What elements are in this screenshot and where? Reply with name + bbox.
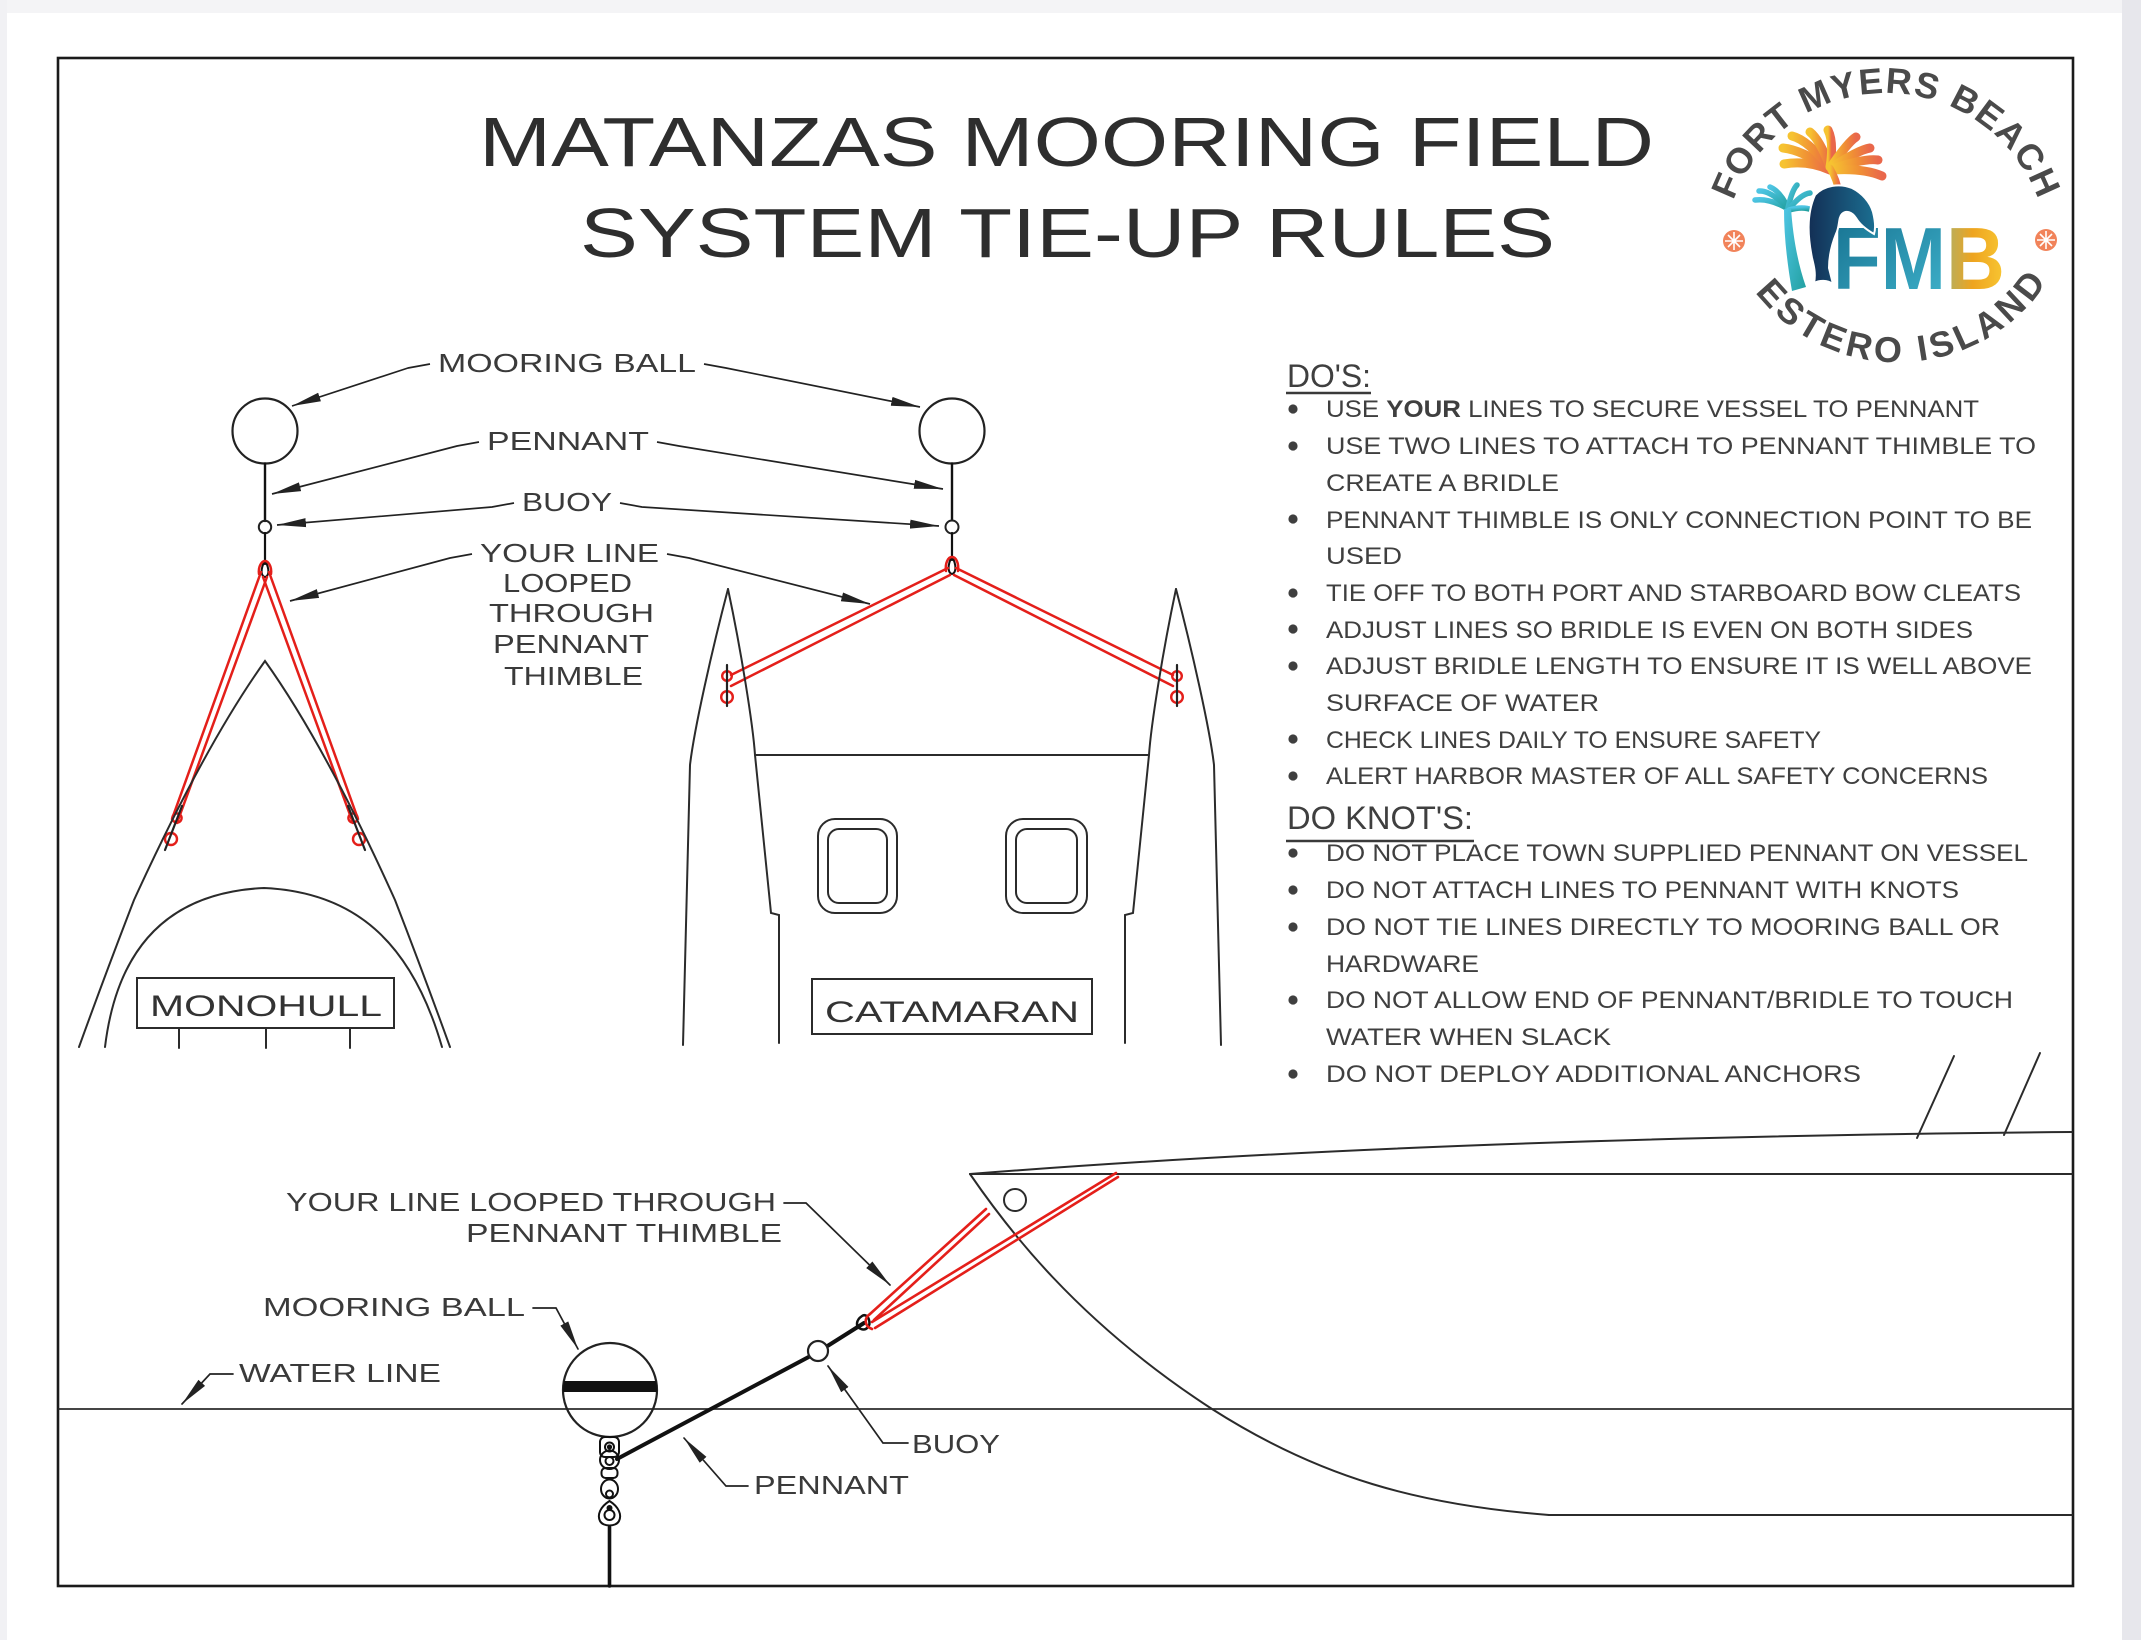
svg-text:DO NOT ATTACH LINES TO PENNANT: DO NOT ATTACH LINES TO PENNANT WITH KNOT…: [1326, 877, 1959, 904]
svg-text:DO'S:: DO'S:: [1287, 358, 1371, 394]
svg-text:HARDWARE: HARDWARE: [1326, 951, 1479, 978]
svg-text:WATER WHEN SLACK: WATER WHEN SLACK: [1326, 1024, 1611, 1051]
svg-text:BUOY: BUOY: [912, 1429, 1000, 1459]
svg-text:DO NOT PLACE TOWN SUPPLIED PEN: DO NOT PLACE TOWN SUPPLIED PENNANT ON VE…: [1326, 840, 2028, 867]
svg-text:DO KNOT'S:: DO KNOT'S:: [1287, 800, 1473, 836]
svg-text:FM: FM: [1833, 209, 1946, 308]
svg-text:PENNANT: PENNANT: [754, 1470, 909, 1500]
svg-text:YOUR LINE LOOPED THROUGH: YOUR LINE LOOPED THROUGH: [286, 1187, 776, 1217]
svg-text:CHECK LINES DAILY TO ENSURE SA: CHECK LINES DAILY TO ENSURE SAFETY: [1326, 727, 1821, 754]
svg-text:THROUGH: THROUGH: [489, 598, 654, 628]
svg-text:USE YOUR LINES TO SECURE VESSE: USE YOUR LINES TO SECURE VESSEL TO PENNA…: [1326, 396, 1979, 423]
svg-text:TIE OFF TO BOTH PORT AND STARB: TIE OFF TO BOTH PORT AND STARBOARD BOW C…: [1326, 580, 2021, 607]
svg-text:SYSTEM TIE-UP RULES: SYSTEM TIE-UP RULES: [580, 194, 1555, 272]
svg-text:DO NOT DEPLOY ADDITIONAL ANCHO: DO NOT DEPLOY ADDITIONAL ANCHORS: [1326, 1061, 1861, 1088]
svg-text:MONOHULL: MONOHULL: [150, 990, 382, 1023]
svg-text:ALERT HARBOR MASTER OF ALL SAF: ALERT HARBOR MASTER OF ALL SAFETY CONCER…: [1326, 763, 1988, 790]
svg-text:BUOY: BUOY: [522, 487, 612, 517]
svg-text:MOORING BALL: MOORING BALL: [263, 1292, 525, 1322]
svg-text:DO NOT ALLOW END OF PENNANT/BR: DO NOT ALLOW END OF PENNANT/BRIDLE TO TO…: [1326, 987, 2013, 1014]
svg-text:THIMBLE: THIMBLE: [504, 661, 643, 691]
svg-text:MATANZAS MOORING FIELD: MATANZAS MOORING FIELD: [479, 103, 1654, 181]
svg-text:PENNANT THIMBLE: PENNANT THIMBLE: [466, 1218, 782, 1248]
svg-text:PENNANT: PENNANT: [487, 426, 649, 456]
svg-text:USED: USED: [1326, 543, 1402, 570]
svg-text:YOUR LINE: YOUR LINE: [480, 538, 659, 568]
svg-text:CREATE A BRIDLE: CREATE A BRIDLE: [1326, 470, 1559, 497]
svg-text:CATAMARAN: CATAMARAN: [825, 996, 1079, 1029]
svg-text:B: B: [1946, 209, 2005, 308]
svg-text:USE TWO LINES TO ATTACH TO PEN: USE TWO LINES TO ATTACH TO PENNANT THIMB…: [1326, 433, 2036, 460]
svg-text:DO NOT TIE LINES DIRECTLY TO M: DO NOT TIE LINES DIRECTLY TO MOORING BAL…: [1326, 914, 2000, 941]
svg-text:PENNANT THIMBLE IS ONLY CONNEC: PENNANT THIMBLE IS ONLY CONNECTION POINT…: [1326, 507, 2032, 534]
svg-text:WATER LINE: WATER LINE: [239, 1358, 441, 1388]
svg-text:MOORING BALL: MOORING BALL: [438, 348, 696, 378]
svg-text:LOOPED: LOOPED: [503, 568, 632, 598]
svg-text:ADJUST LINES SO BRIDLE IS EVEN: ADJUST LINES SO BRIDLE IS EVEN ON BOTH S…: [1326, 617, 1973, 644]
svg-text:PENNANT: PENNANT: [493, 629, 649, 659]
svg-text:ADJUST BRIDLE LENGTH TO ENSURE: ADJUST BRIDLE LENGTH TO ENSURE IT IS WEL…: [1326, 653, 2032, 680]
svg-text:SURFACE OF WATER: SURFACE OF WATER: [1326, 690, 1599, 717]
